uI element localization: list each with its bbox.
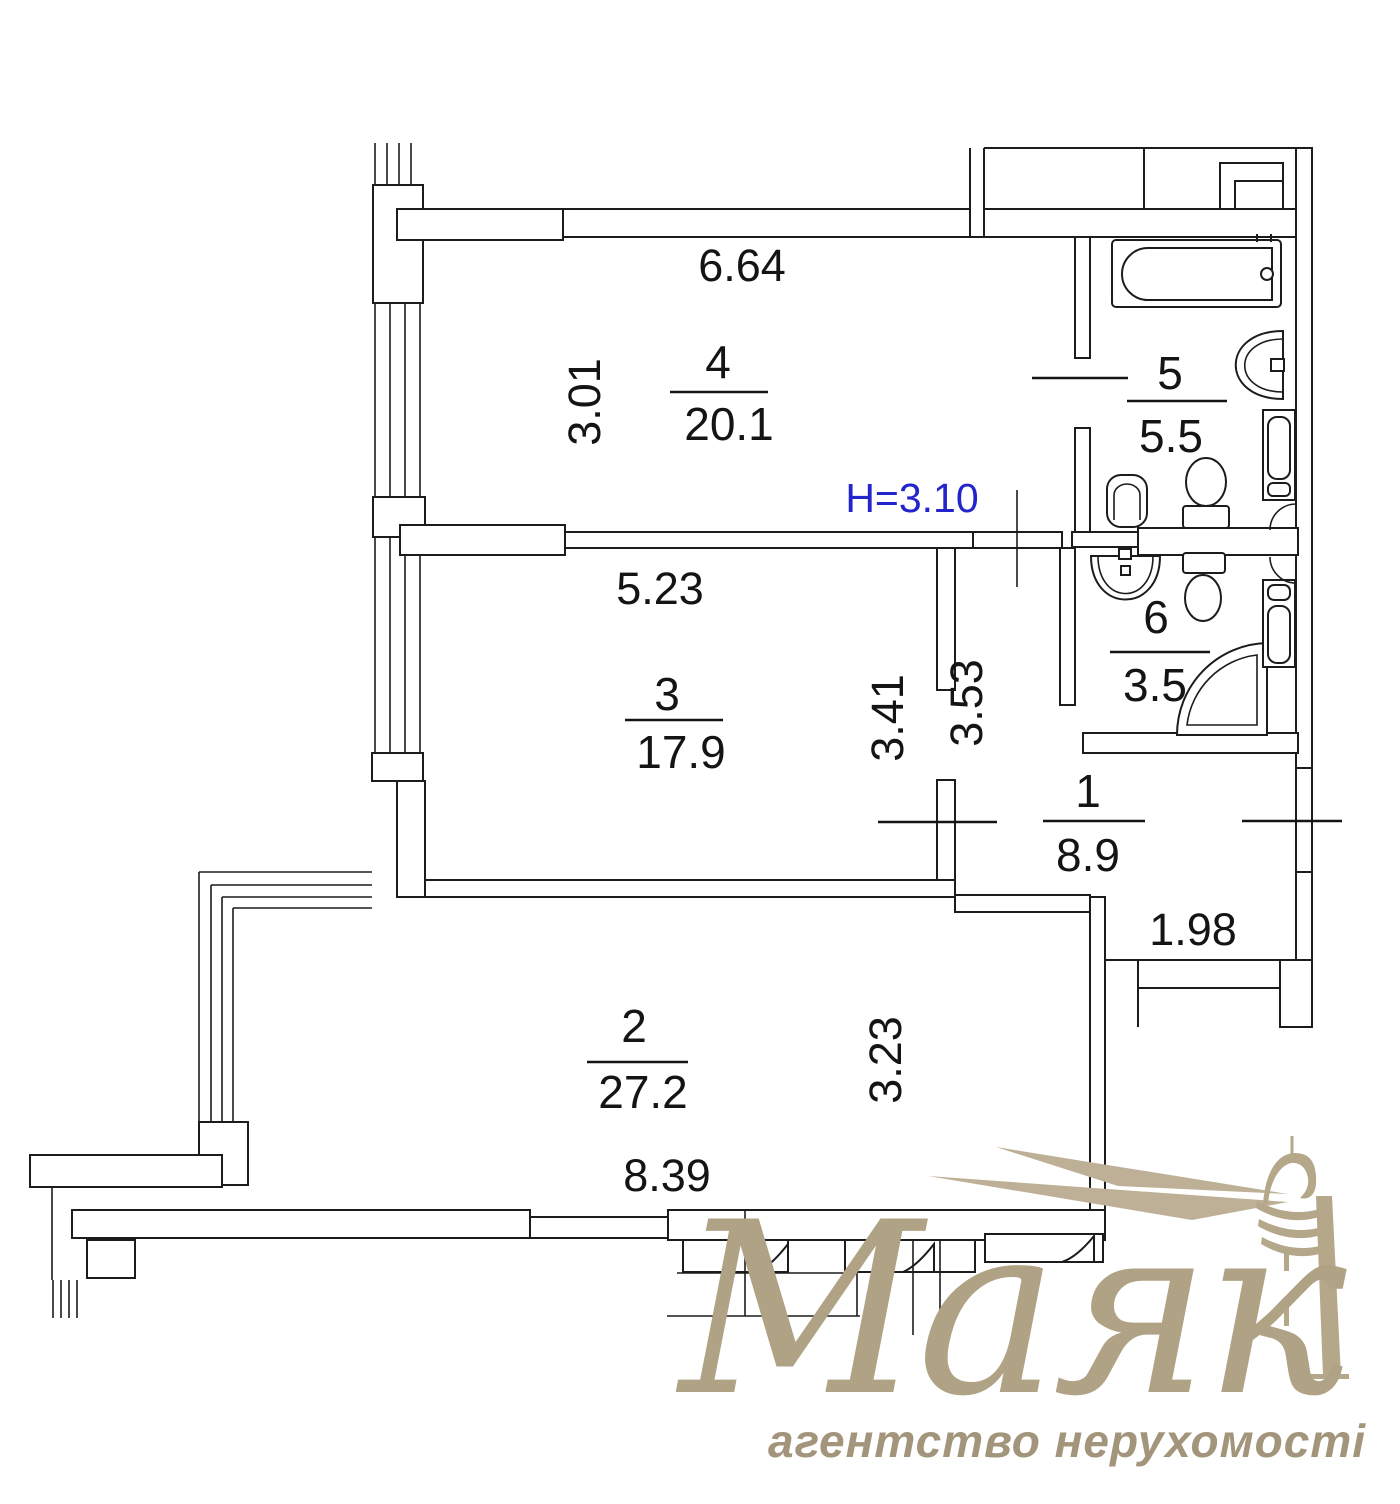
svg-text:5.5: 5.5 xyxy=(1139,410,1203,462)
room-label-3: 3 17.9 xyxy=(625,668,726,778)
room-label-5: 5 5.5 xyxy=(1127,347,1227,462)
floor-plan-page: 6.64 3.01 5.23 3.41 3.53 1.98 3.23 8.39 … xyxy=(0,0,1400,1504)
svg-text:1: 1 xyxy=(1075,765,1101,817)
corner-shower-icon xyxy=(1177,643,1267,735)
door-swing-icon xyxy=(1270,504,1296,530)
toilet-tank-icon xyxy=(1183,553,1225,573)
bidet-icon xyxy=(1107,475,1147,527)
dim-hall-step: 1.98 xyxy=(1149,904,1237,955)
svg-text:5: 5 xyxy=(1157,347,1183,399)
sink-tap-icon xyxy=(1271,359,1284,371)
svg-text:3: 3 xyxy=(654,668,680,720)
dim-room3-side: 3.41 xyxy=(862,674,913,762)
svg-text:20.1: 20.1 xyxy=(684,398,774,450)
dim-top: 6.64 xyxy=(698,240,786,291)
dim-room4-side: 3.01 xyxy=(559,358,610,446)
ceiling-height-note: H=3.10 xyxy=(845,475,978,521)
dim-room2-side: 3.23 xyxy=(860,1016,911,1104)
svg-text:27.2: 27.2 xyxy=(598,1066,688,1118)
sink-tap-icon xyxy=(1119,549,1131,559)
svg-text:6: 6 xyxy=(1143,591,1169,643)
room-label-4: 4 20.1 xyxy=(670,336,774,450)
room-label-2: 2 27.2 xyxy=(587,1000,688,1118)
dim-room3-top: 5.23 xyxy=(616,563,704,614)
svg-text:2: 2 xyxy=(621,1000,647,1052)
toilet-bowl-icon xyxy=(1185,575,1221,621)
bathtub-tap-icon xyxy=(1261,268,1273,280)
brand-name: Маяк xyxy=(675,1172,1347,1449)
brand-tagline: агентство нерухомості xyxy=(768,1415,1366,1467)
bathroom-5-fixtures xyxy=(1107,234,1296,530)
floor-plan-drawing: 6.64 3.01 5.23 3.41 3.53 1.98 3.23 8.39 … xyxy=(0,0,1400,1504)
bathroom-6-fixtures xyxy=(1091,549,1296,735)
svg-text:17.9: 17.9 xyxy=(636,726,726,778)
toilet-tank-icon xyxy=(1183,506,1229,528)
toilet-bowl-icon xyxy=(1186,458,1226,506)
svg-text:8.9: 8.9 xyxy=(1056,829,1120,881)
watermark-logo: Маяк агентство нерухомості xyxy=(675,1136,1366,1467)
room-label-1: 1 8.9 xyxy=(1043,765,1145,881)
svg-text:3.5: 3.5 xyxy=(1123,659,1187,711)
dim-corridor-side: 3.53 xyxy=(941,659,992,747)
svg-text:4: 4 xyxy=(705,336,731,388)
